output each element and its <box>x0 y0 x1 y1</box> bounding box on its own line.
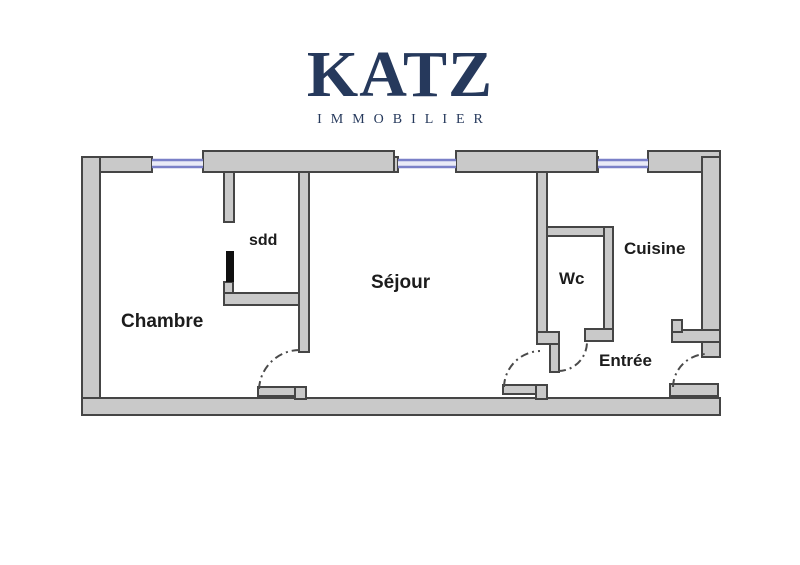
room-label-chambre: Chambre <box>121 311 203 333</box>
wall-wc-east <box>604 227 613 341</box>
wall-right <box>702 157 720 357</box>
window-icon-cuisine <box>598 160 648 168</box>
wall-top-raised-b <box>456 151 597 172</box>
window-icon-chambre <box>152 160 203 168</box>
room-label-wc: Wc <box>559 269 585 289</box>
wall-chambre-sejour-divider <box>299 172 309 352</box>
sejour-door-arc <box>504 351 540 387</box>
wall-left <box>82 157 100 415</box>
wall-sdd-south <box>224 293 309 305</box>
chambre-door-stub <box>295 387 306 399</box>
room-label-sdd: sdd <box>249 232 277 250</box>
wall-sejour-entree-divider <box>537 172 547 338</box>
wall-top-raised-a <box>203 151 394 172</box>
sdd-door-black-leaf <box>226 251 234 282</box>
room-label-sejour: Séjour <box>371 272 430 294</box>
wc-door-leaf <box>550 344 559 372</box>
sejour-door-stub <box>536 385 547 399</box>
window-icon-sejour <box>398 160 456 168</box>
wc-door-arc <box>558 342 587 371</box>
wall-cuisine-divider-tick <box>672 320 682 332</box>
chambre-door-leaf <box>258 387 298 396</box>
wall-bottom <box>82 398 720 415</box>
wall-wc-east-foot <box>585 329 613 341</box>
floorplan-page: KATZ IMMOBILIER <box>0 0 800 565</box>
room-label-cuisine: Cuisine <box>624 239 685 259</box>
chambre-door-arc <box>259 350 301 389</box>
wall-sdd-west-upper <box>224 172 234 222</box>
entrance-door-leaf <box>670 384 718 396</box>
entrance-door-arc <box>673 354 706 387</box>
room-label-entree: Entrée <box>599 351 652 371</box>
wall-divider-foot <box>537 332 559 344</box>
